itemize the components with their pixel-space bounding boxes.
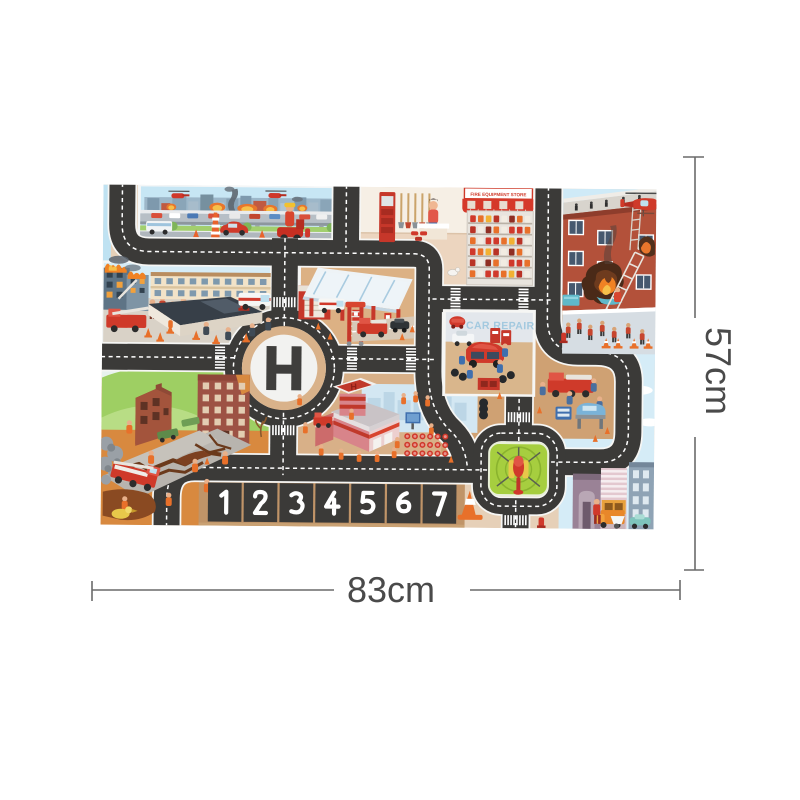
svg-text:57cm: 57cm [698, 327, 739, 415]
svg-text:CAR REPAIR: CAR REPAIR [466, 320, 535, 333]
svg-text:H: H [350, 382, 357, 392]
svg-text:FIRE EQUIPMENT STORE: FIRE EQUIPMENT STORE [470, 192, 526, 197]
svg-text:83cm: 83cm [347, 569, 435, 610]
